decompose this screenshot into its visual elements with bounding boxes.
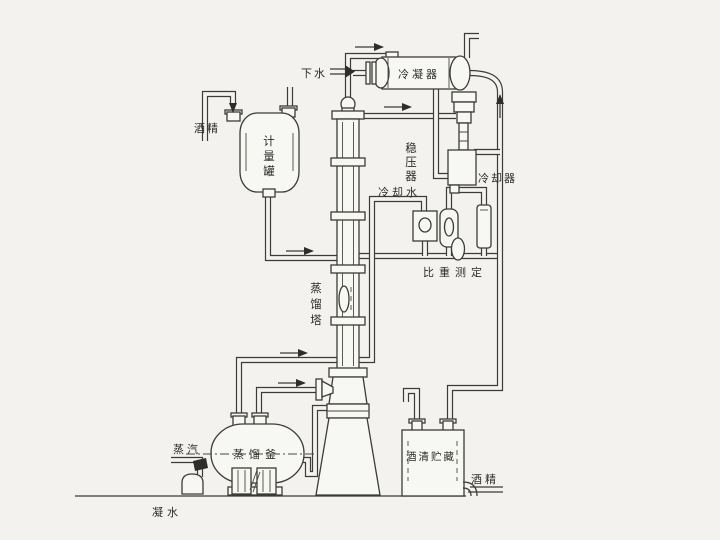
- process-diagram-canvas: 下水 冷凝器 稳压器 冷却器 冷却水 比重测定 酒精 计量罐 蒸馏塔 蒸馏釜 蒸…: [0, 0, 720, 540]
- flow-arrow-top: [355, 43, 384, 51]
- label-measuring-tank: 计量罐: [262, 135, 276, 180]
- label-distillation-still: 蒸馏釜: [233, 446, 281, 462]
- column-flange: [331, 158, 365, 166]
- stabilizer-tube: [459, 123, 468, 150]
- flow-arrow-feed-line: [286, 247, 314, 255]
- cooler-bottom-step: [450, 185, 459, 193]
- column-bottom-flange: [329, 368, 367, 377]
- condenser-stub-flange: [366, 62, 370, 84]
- label-gravity-measurement: 比重测定: [423, 264, 487, 280]
- label-cooling-water: 冷却水: [378, 184, 420, 200]
- column-flange: [331, 212, 365, 220]
- storage-outlet-pipe: [468, 487, 503, 492]
- cone-nozzle-flange: [316, 379, 322, 400]
- flow-arrow-cone-line: [278, 379, 306, 387]
- measuring-tank-left-nozzle: [227, 112, 240, 121]
- label-pressure-stabilizer: 稳压器: [404, 142, 418, 184]
- hydrometer-cylinder: [477, 205, 491, 248]
- column-shell: [337, 119, 359, 369]
- column-cone: [329, 377, 367, 404]
- label-condensate: 凝水: [152, 504, 182, 520]
- flow-arrow-stabilizer-line: [384, 103, 412, 111]
- label-alcohol-storage: 酒清贮藏: [406, 449, 456, 464]
- hydrometer-bulb: [452, 238, 465, 260]
- condensate-trap-pot: [182, 474, 203, 494]
- measuring-tank-outlet-nozzle: [263, 189, 275, 197]
- pipe-storage-vent-gooseneck: [406, 391, 417, 422]
- label-alcohol-out: 酒精: [471, 471, 499, 487]
- pressure-stabilizer-stack: [452, 92, 476, 150]
- label-alcohol-feed: 酒精: [194, 120, 220, 136]
- sight-glass-instrument: [413, 211, 437, 241]
- still-support: [257, 468, 276, 494]
- label-condenser: 冷凝器: [398, 66, 440, 82]
- diagram-drawing: [0, 0, 720, 540]
- column-skirt: [316, 418, 380, 495]
- condenser-right-head: [450, 56, 470, 90]
- column-flange: [331, 265, 365, 273]
- label-drain-water: 下水: [301, 65, 327, 81]
- flow-arrow-vapor-line: [280, 349, 308, 357]
- still-support: [232, 468, 251, 494]
- cooler-vessel: [448, 150, 476, 193]
- label-steam: 蒸汽: [173, 441, 201, 457]
- column-top-flange: [332, 111, 364, 119]
- label-distillation-column: 蒸馏塔: [309, 281, 323, 329]
- pipe-condenser-vent: [467, 36, 479, 58]
- column-sight-glass: [339, 286, 349, 312]
- flow-arrow-drain-water: [330, 65, 355, 78]
- label-cooler: 冷却器: [478, 170, 517, 186]
- column-flange: [331, 317, 365, 325]
